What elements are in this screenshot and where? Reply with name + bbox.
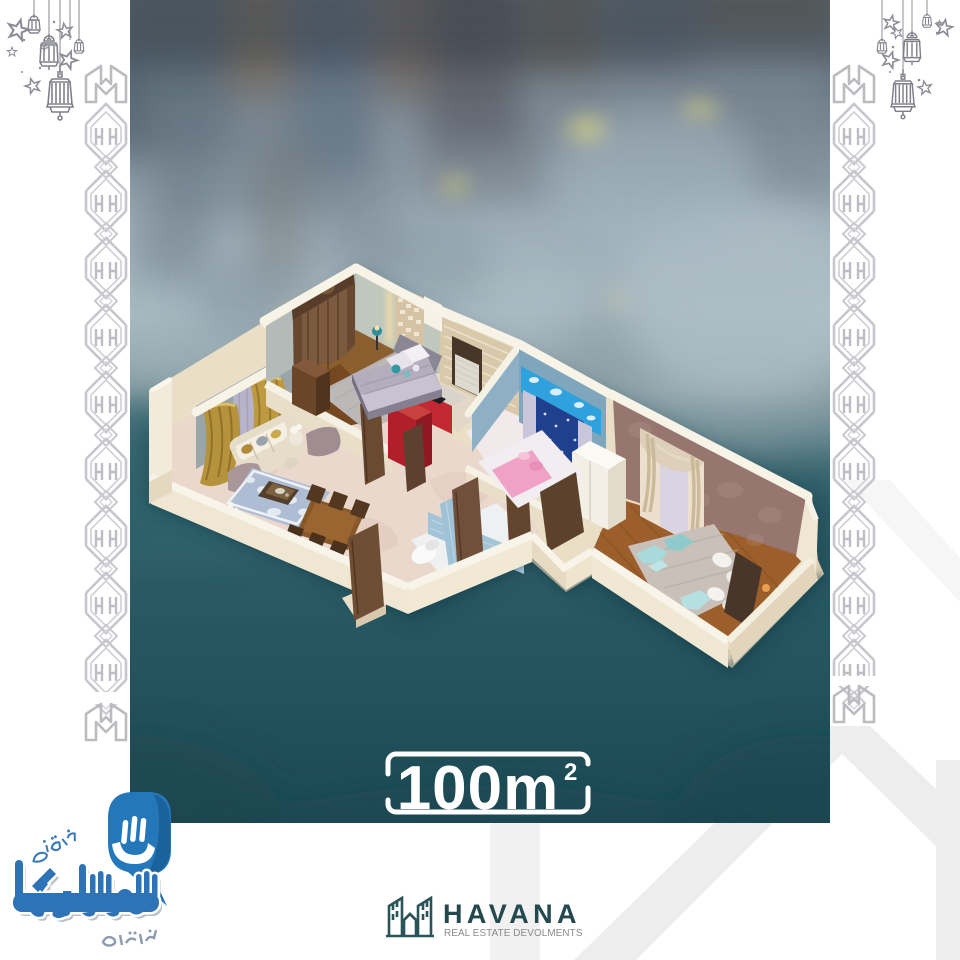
svg-text:2: 2 (564, 759, 577, 786)
svg-text:100m: 100m (397, 754, 560, 823)
svg-text:REAL ESTATE DEVOLMENTS: REAL ESTATE DEVOLMENTS (444, 928, 583, 939)
svg-text:HAVANA: HAVANA (443, 899, 581, 929)
